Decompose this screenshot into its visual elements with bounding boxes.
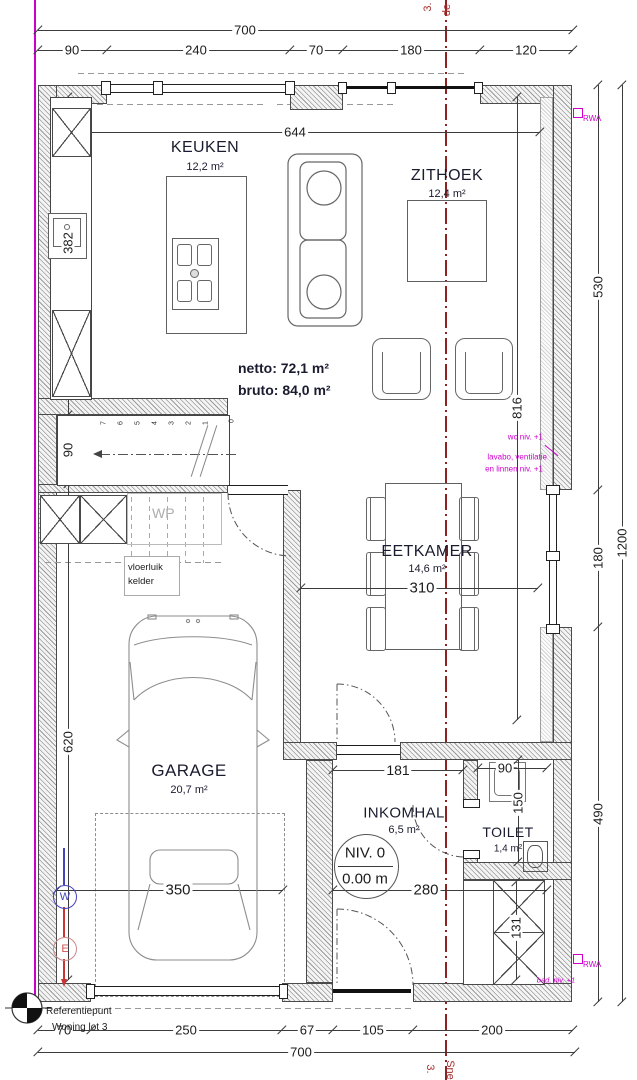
room-area-eetkamer: 14,6 m² <box>408 563 445 575</box>
dim-left-620: 620 <box>62 729 75 755</box>
stair-number: 0 <box>229 419 236 423</box>
property-line <box>34 0 36 1012</box>
room-label-keuken: KEUKEN <box>171 139 239 157</box>
dim-right-490: 490 <box>592 801 605 827</box>
window-jamb <box>338 82 347 94</box>
room-label-zithoek: ZITHOEK <box>411 167 483 185</box>
parking-outline <box>95 813 285 997</box>
wall-bottom-right <box>413 983 572 1002</box>
annotation-lavabo: lavabo, ventilatie <box>487 453 547 462</box>
sofa <box>288 154 362 326</box>
room-label-inkomhal: INKOMHAL <box>363 805 445 822</box>
toilet-door-jamb <box>463 799 480 808</box>
dim-top-240: 240 <box>183 44 209 57</box>
window-jamb <box>546 624 560 634</box>
wall-right-lower <box>553 627 572 1002</box>
room-label-eetkamer: EETKAMER <box>381 543 472 561</box>
west-line <box>63 848 65 885</box>
dim-left-382: 382 <box>62 230 75 256</box>
dim-interior-644: 644 <box>282 126 308 139</box>
dining-chair <box>366 497 386 541</box>
armchair <box>455 338 513 400</box>
dim-line-top-total <box>38 30 573 31</box>
dim-bottom-200: 200 <box>479 1024 505 1037</box>
dim-right-530: 530 <box>592 274 605 300</box>
dim-right-1200: 1200 <box>616 527 629 560</box>
kitchen-window <box>107 84 290 93</box>
stair-walk-line <box>100 454 238 455</box>
wall-toilet-bottom <box>463 862 572 880</box>
wall-garage-right <box>283 490 301 760</box>
front-door-leaf <box>333 989 411 993</box>
burner <box>197 244 212 266</box>
room-area-inkomhal: 6,5 m² <box>388 824 419 836</box>
eaves-dash-top <box>78 73 466 74</box>
wall-right-upper-lining <box>540 97 553 490</box>
dim-left-90: 90 <box>62 441 75 459</box>
window-jamb <box>285 81 295 95</box>
stair-walk-arrow <box>93 450 102 458</box>
kitchen-cabinet-x <box>52 108 91 157</box>
wall-inkomhal-top-left <box>283 742 337 760</box>
wall-above-stairs <box>38 398 228 415</box>
room-area-zithoek: 12,4 m² <box>428 188 465 200</box>
west-marker-label: W <box>60 891 70 903</box>
dim-toilet-90: 90 <box>496 762 514 775</box>
window-jamb <box>101 81 111 95</box>
dim-toilet-150: 150 <box>512 790 525 816</box>
east-line-arrow <box>61 979 67 987</box>
burner <box>177 280 192 302</box>
rwa-symbol <box>573 954 583 964</box>
stairs <box>57 415 230 486</box>
wall-inkomhal-top-right <box>400 742 572 760</box>
dining-chair <box>459 607 479 651</box>
dim-line-right-chain <box>598 85 599 1002</box>
room-area-toilet: 1,4 m² <box>494 844 522 855</box>
room-label-toilet: TOILET <box>482 824 533 840</box>
west-marker: W <box>53 885 77 909</box>
annotation-bad: bad, niv. +1 <box>537 976 575 985</box>
burner <box>177 244 192 266</box>
storage-box-x <box>80 495 127 544</box>
dim-top-180: 180 <box>398 44 424 57</box>
dim-eetkamer-310: 310 <box>407 581 436 596</box>
window-mullion <box>153 81 163 95</box>
closet-strip <box>463 880 495 985</box>
wall-bottom-pier <box>282 983 333 1002</box>
dim-top-70: 70 <box>307 44 325 57</box>
wall-inkomhal-left <box>306 760 333 983</box>
inkomhal-door-arc <box>337 684 395 742</box>
armchair <box>372 338 431 400</box>
level-marker-divider <box>338 866 393 867</box>
garage-sectional-door <box>91 986 282 996</box>
netto-area: netto: 72,1 m² <box>238 360 329 376</box>
annotation-linnen: en linnen niv. +1 <box>485 465 543 474</box>
window-jamb <box>546 485 560 495</box>
window-mullion <box>546 551 560 561</box>
front-door-arc <box>337 909 413 985</box>
room-area-keuken: 12,2 m² <box>186 161 223 173</box>
dining-chair <box>459 497 479 541</box>
toilet-door-jamb <box>463 850 480 859</box>
level-height: 0.00 m <box>342 871 388 888</box>
living-fixed-window <box>343 86 480 89</box>
dim-garage-350: 350 <box>163 883 192 898</box>
annotation-wc: wc niv. +1 <box>508 433 543 442</box>
east-line-lower <box>63 959 65 979</box>
floor-plan: 7 6 5 4 3 2 1 0 WP vloerluik kelder NIV.… <box>0 0 637 1080</box>
room-area-garage: 20,7 m² <box>170 784 207 796</box>
dim-bottom-250: 250 <box>173 1024 199 1037</box>
section-label-bottom-2: Sne <box>444 1060 456 1080</box>
east-marker-label: E <box>61 943 68 955</box>
level-name: NIV. 0 <box>345 845 385 862</box>
door-jamb <box>86 984 95 999</box>
vloerluik-label-2: kelder <box>128 576 154 587</box>
dim-top-90: 90 <box>63 44 81 57</box>
window-jamb <box>474 82 483 94</box>
dim-bottom-67: 67 <box>298 1024 316 1037</box>
hall-door-leaf <box>228 485 288 495</box>
stair-number: 3 <box>169 421 176 425</box>
toilet-bowl-inner <box>527 845 543 868</box>
rwa-symbol <box>573 108 583 118</box>
burner <box>197 280 212 302</box>
appliance-knob <box>64 224 70 230</box>
rwa-label-top: RWA <box>583 114 601 123</box>
stair-number: 5 <box>135 421 142 425</box>
dim-bottom-105: 105 <box>360 1024 386 1037</box>
wall-right-lower-lining <box>540 627 553 742</box>
dim-inkomhal-181: 181 <box>384 763 411 777</box>
inkomhal-door-leaf <box>337 745 400 755</box>
storage-box-x <box>40 495 80 544</box>
kitchen-cabinet-x <box>52 310 91 397</box>
dim-interior-816: 816 <box>511 395 524 421</box>
room-label-garage: GARAGE <box>151 761 226 781</box>
hall-door-arc <box>228 493 291 556</box>
rwa-label-bottom: RWA <box>583 960 601 969</box>
section-label-top-1: 3. <box>422 2 434 11</box>
referentiepunt-label: Referentiepunt <box>46 1006 112 1017</box>
dim-top-120: 120 <box>513 44 539 57</box>
dining-chair <box>366 607 386 651</box>
dim-closet-131: 131 <box>510 915 523 941</box>
wall-right-upper <box>553 85 572 490</box>
dim-line-top-chain <box>38 50 573 51</box>
zithoek-table <box>407 200 487 282</box>
section-label-bottom-1: 3. <box>424 1064 436 1073</box>
vloerluik-label-1: vloerluik <box>128 562 163 573</box>
dim-inkomhal-280: 280 <box>411 883 440 898</box>
section-label-top-2: de <box>441 4 453 16</box>
dim-top-total: 700 <box>232 24 258 37</box>
stair-number: 6 <box>118 421 125 425</box>
stair-number: 7 <box>101 421 108 425</box>
eaves-dash-top-inner-1 <box>97 104 263 105</box>
dim-bottom-total: 700 <box>288 1046 314 1059</box>
stair-number: 2 <box>186 421 193 425</box>
east-line-upper <box>63 907 65 937</box>
wall-top-pier <box>290 85 343 110</box>
bruto-area: bruto: 84,0 m² <box>238 382 331 398</box>
window-mullion <box>387 82 396 94</box>
stair-number: 1 <box>203 421 210 425</box>
door-jamb <box>279 984 288 999</box>
wp-label: WP <box>152 505 175 521</box>
dim-right-180: 180 <box>592 545 605 571</box>
woning-lot-label: Woning lot 3 <box>52 1022 107 1033</box>
cooktop-knob <box>190 269 199 278</box>
stair-number: 4 <box>152 421 159 425</box>
east-marker: E <box>53 937 77 961</box>
